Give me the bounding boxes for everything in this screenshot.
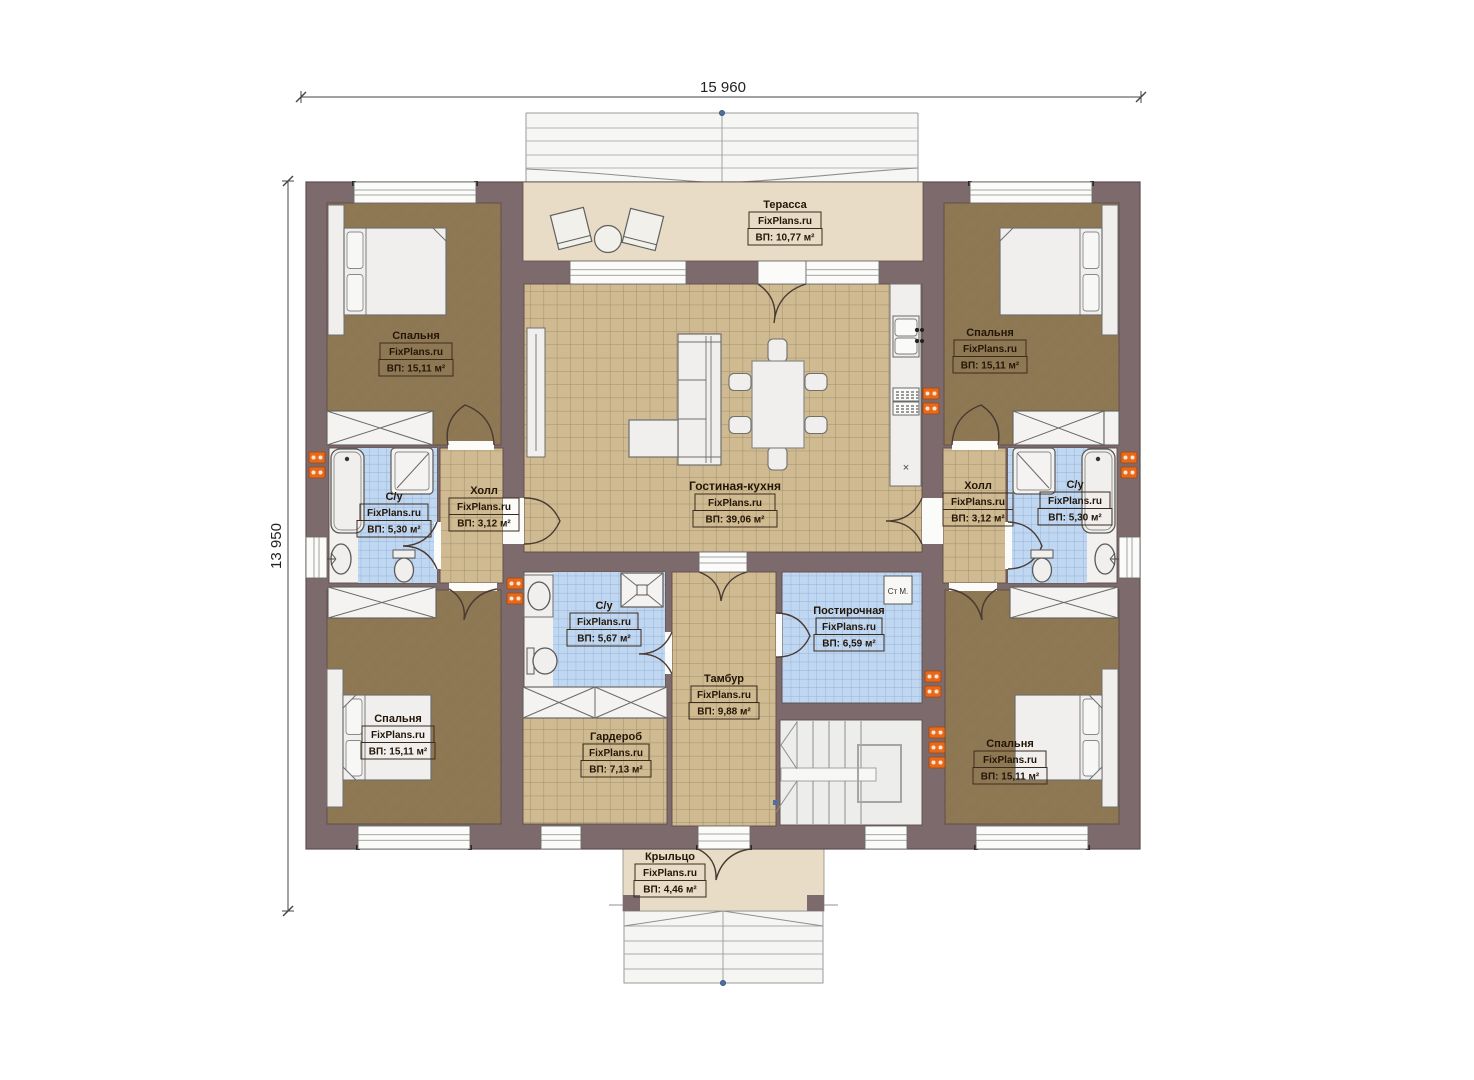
svg-text:Холл: Холл — [470, 485, 498, 497]
svg-text:FixPlans.ru: FixPlans.ru — [963, 344, 1017, 355]
svg-text:13 950: 13 950 — [268, 523, 285, 569]
svg-text:ВП: 15,11 м²: ВП: 15,11 м² — [981, 772, 1040, 783]
svg-text:ВП: 6,59 м²: ВП: 6,59 м² — [822, 639, 876, 650]
svg-text:ВП: 3,12 м²: ВП: 3,12 м² — [457, 519, 511, 530]
svg-text:ВП: 7,13 м²: ВП: 7,13 м² — [589, 765, 643, 776]
svg-text:FixPlans.ru: FixPlans.ru — [758, 216, 812, 227]
svg-text:ВП: 5,30 м²: ВП: 5,30 м² — [1048, 513, 1102, 524]
svg-text:Спальня: Спальня — [966, 327, 1014, 339]
svg-text:Холл: Холл — [964, 480, 992, 492]
svg-text:FixPlans.ru: FixPlans.ru — [951, 497, 1005, 508]
svg-text:С/у: С/у — [1066, 479, 1084, 491]
svg-text:Тамбур: Тамбур — [704, 673, 744, 685]
svg-text:Спальня: Спальня — [392, 330, 440, 342]
svg-text:С/у: С/у — [385, 491, 403, 503]
svg-text:FixPlans.ru: FixPlans.ru — [389, 347, 443, 358]
svg-text:Гостиная-кухня: Гостиная-кухня — [689, 479, 781, 493]
svg-text:Ст М.: Ст М. — [888, 587, 909, 596]
svg-text:FixPlans.ru: FixPlans.ru — [589, 748, 643, 759]
svg-text:FixPlans.ru: FixPlans.ru — [643, 868, 697, 879]
svg-text:Спальня: Спальня — [986, 738, 1034, 750]
svg-text:15 960: 15 960 — [700, 79, 746, 96]
svg-text:Терасса: Терасса — [763, 199, 807, 211]
svg-text:ВП: 4,46 м²: ВП: 4,46 м² — [643, 885, 697, 896]
svg-text:FixPlans.ru: FixPlans.ru — [457, 502, 511, 513]
svg-text:ВП: 9,88 м²: ВП: 9,88 м² — [697, 707, 751, 718]
svg-text:С/у: С/у — [595, 600, 613, 612]
svg-text:×: × — [903, 462, 909, 474]
svg-text:ВП: 10,77 м²: ВП: 10,77 м² — [755, 233, 815, 244]
svg-text:Спальня: Спальня — [374, 713, 422, 725]
svg-text:ВП: 15,11 м²: ВП: 15,11 м² — [369, 747, 428, 758]
svg-text:ВП: 15,11 м²: ВП: 15,11 м² — [961, 361, 1020, 372]
svg-text:FixPlans.ru: FixPlans.ru — [577, 617, 631, 628]
svg-text:FixPlans.ru: FixPlans.ru — [822, 622, 876, 633]
svg-text:FixPlans.ru: FixPlans.ru — [1048, 496, 1102, 507]
svg-text:ВП: 5,67 м²: ВП: 5,67 м² — [577, 634, 631, 645]
svg-text:ВП: 15,11 м²: ВП: 15,11 м² — [387, 364, 446, 375]
svg-text:FixPlans.ru: FixPlans.ru — [983, 755, 1037, 766]
svg-text:ВП: 3,12 м²: ВП: 3,12 м² — [951, 514, 1005, 525]
svg-text:FixPlans.ru: FixPlans.ru — [697, 690, 751, 701]
svg-text:Гардероб: Гардероб — [590, 731, 642, 743]
svg-text:FixPlans.ru: FixPlans.ru — [371, 730, 425, 741]
svg-text:ВП: 5,30 м²: ВП: 5,30 м² — [367, 525, 421, 536]
svg-text:ВП: 39,06 м²: ВП: 39,06 м² — [705, 515, 765, 526]
svg-text:FixPlans.ru: FixPlans.ru — [708, 498, 762, 509]
svg-text:FixPlans.ru: FixPlans.ru — [367, 508, 421, 519]
svg-text:Крыльцо: Крыльцо — [645, 851, 695, 863]
svg-text:Постирочная: Постирочная — [813, 605, 884, 617]
